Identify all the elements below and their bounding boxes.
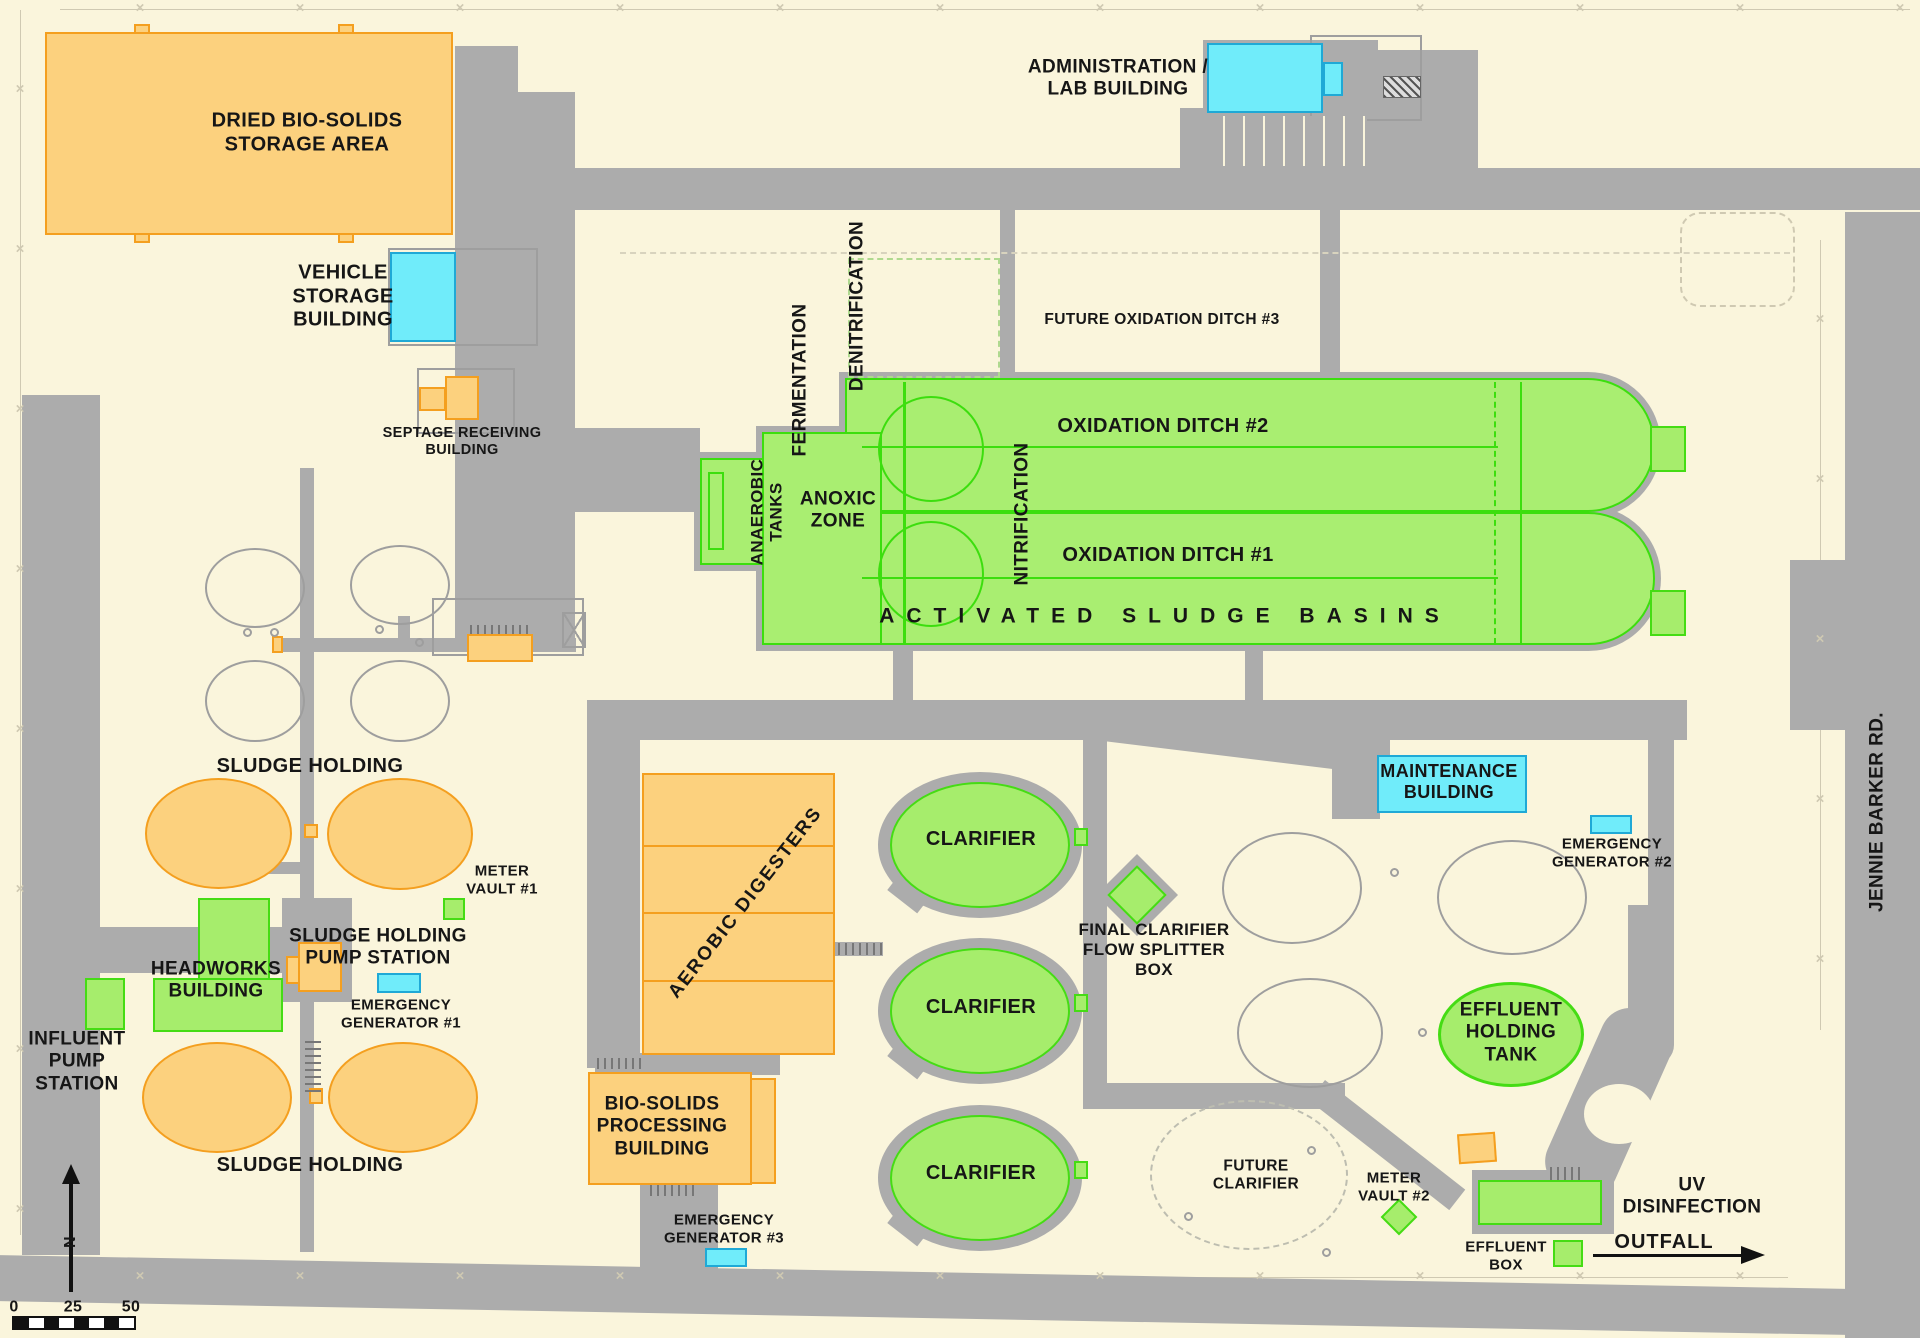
clarifier-1-tab	[1074, 828, 1088, 846]
road-clarifier-spine	[1083, 738, 1107, 1090]
sludge-holding-tank-1	[145, 778, 292, 889]
road-digester-column	[587, 738, 640, 1068]
empty-tank-3	[205, 660, 305, 742]
outfall-label: OUTFALL	[1614, 1231, 1713, 1255]
clarifier-3-tab	[1074, 1161, 1088, 1179]
sludge-holding-upper-label: SLUDGE HOLDING	[217, 755, 404, 779]
oxidation-ditch-1-label: OXIDATION DITCH #1	[1062, 544, 1273, 568]
road-top	[520, 168, 1920, 210]
cluster-building-hatch	[470, 625, 532, 634]
meter-vault-1-box	[443, 898, 465, 920]
uv-disinfection-label: UV DISINFECTION	[1623, 1175, 1762, 1220]
uv-disinfection-unit	[1478, 1180, 1602, 1225]
denitrification-label: DENITRIFICATION	[848, 221, 869, 391]
ditch-2-end-structure	[1650, 426, 1686, 472]
dried-tab-4	[338, 233, 354, 243]
anoxic-zone-label: ANOXIC ZONE	[800, 489, 876, 534]
road-conn-c	[893, 643, 913, 703]
dried-tab-3	[134, 233, 150, 243]
denitrification-future-zone	[848, 258, 1000, 378]
final-clarifier-flow-splitter-label: FINAL CLARIFIER FLOW SPLITTER BOX	[1078, 920, 1229, 980]
septage-receiving-label: SEPTAGE RECEIVING BUILDING	[383, 425, 542, 459]
future-clarifier-label: FUTURE CLARIFIER	[1213, 1158, 1299, 1195]
site-plan-map: ××××××××××××××××××××××××××××××××××××	[0, 0, 1920, 1338]
basin-divider-dashed	[1494, 382, 1496, 644]
emergency-generator-1-unit	[377, 973, 421, 993]
valve-dot-1	[243, 628, 252, 637]
stairs-2	[838, 943, 882, 955]
emergency-generator-1-label: EMERGENCY GENERATOR #1	[341, 996, 461, 1031]
activated-sludge-basins-label: ACTIVATED SLUDGE BASINS	[879, 605, 1451, 630]
empty-tank-7	[1237, 978, 1383, 1088]
cluster-building	[467, 634, 533, 662]
effluent-box-unit	[1553, 1240, 1583, 1267]
road-elbow	[518, 428, 700, 512]
sludge-holding-pump-station-label: SLUDGE HOLDING PUMP STATION	[289, 926, 467, 971]
pad-maintenance	[1332, 753, 1380, 819]
admin-hatch-pad	[1383, 76, 1421, 98]
sludge-holding-tank-3	[142, 1042, 292, 1153]
valve-dot-8	[1322, 1248, 1331, 1257]
sludge-holding-tank-4	[328, 1042, 478, 1153]
empty-tank-2	[350, 545, 450, 625]
valve-dot-5	[1390, 868, 1399, 877]
anaerobic-tanks-label: ANAEROBIC TANKS	[748, 459, 785, 566]
clarifier-2-tab	[1074, 994, 1088, 1012]
road-left	[22, 395, 100, 1255]
valve-dot-3	[375, 625, 384, 634]
emergency-generator-3-label: EMERGENCY GENERATOR #3	[664, 1211, 784, 1246]
anoxic-arc-upper	[878, 396, 984, 502]
clarifier-2-label: CLARIFIER	[926, 996, 1036, 1020]
dried-tab-1	[134, 24, 150, 34]
headworks-building-label: HEADWORKS BUILDING	[151, 959, 281, 1004]
meter-vault-1-label: METER VAULT #1	[466, 862, 538, 897]
north-arrow-icon: N	[55, 1160, 89, 1305]
valve-dot-6	[1418, 1028, 1427, 1037]
scale-tick-25: 25	[64, 1299, 83, 1318]
vehicle-storage-label: VEHICLE STORAGE BUILDING	[292, 262, 393, 333]
effluent-holding-tank-label: EFFLUENT HOLDING TANK	[1460, 999, 1562, 1066]
emergency-generator-3-unit	[705, 1248, 747, 1267]
vehicle-storage-building	[390, 252, 456, 342]
stairs-4	[597, 1058, 641, 1069]
septage-receiving-annex	[419, 387, 446, 411]
clarifier-1-label: CLARIFIER	[926, 828, 1036, 852]
stairs-3	[1550, 1167, 1584, 1180]
oxidation-ditch-2-label: OXIDATION DITCH #2	[1057, 415, 1268, 439]
road-bottom	[0, 1255, 1920, 1337]
administration-annex	[1323, 62, 1343, 96]
digester-divider-1	[642, 845, 835, 847]
influent-pump-station-label: INFLUENT PUMP STATION	[28, 1028, 125, 1095]
administration-lab-label: ADMINISTRATION / LAB BUILDING	[1028, 57, 1208, 102]
ditch-1-end-structure	[1650, 590, 1686, 636]
scale-tick-50: 50	[122, 1299, 141, 1318]
clarifier-3-label: CLARIFIER	[926, 1162, 1036, 1186]
biosolids-processing-column	[750, 1078, 776, 1184]
valve-dot-9	[1184, 1212, 1193, 1221]
nitrification-label: NITRIFICATION	[1013, 442, 1034, 585]
valve-dot-2	[270, 628, 279, 637]
basin-divider-2	[1520, 382, 1522, 644]
future-oxidation-ditch-3-label: FUTURE OXIDATION DITCH #3	[1044, 311, 1279, 329]
empty-tank-1	[205, 548, 305, 628]
fermentation-label: FERMENTATION	[791, 304, 812, 457]
meter-vault-2-label: METER VAULT #2	[1358, 1169, 1430, 1204]
sludge-holding-lower-label: SLUDGE HOLDING	[217, 1154, 404, 1178]
effluent-box-label: EFFLUENT BOX	[1465, 1238, 1547, 1273]
stairs-5	[650, 1185, 694, 1196]
empty-tank-5	[1222, 832, 1362, 944]
road-conn-b	[1320, 205, 1340, 380]
valve-dot-7	[1307, 1146, 1316, 1155]
cluster-small-structure	[272, 636, 283, 653]
influent-pump-station-building	[85, 978, 125, 1030]
uv-road-island	[1584, 1084, 1654, 1144]
road-conn-a	[1000, 205, 1015, 380]
anaerobic-tanks-inner	[708, 472, 724, 550]
future-ditch-dashed-line	[620, 252, 1790, 254]
admin-parking	[1205, 116, 1367, 166]
jennie-barker-rd-label: JENNIE BARKER RD.	[1868, 712, 1889, 912]
sludge-holding-tank-2	[327, 778, 473, 890]
septage-receiving-building	[445, 376, 479, 420]
maintenance-building-label: MAINTENANCE BUILDING	[1380, 761, 1517, 803]
dried-tab-2	[338, 24, 354, 34]
north-letter: N	[62, 1236, 80, 1248]
tank-valve-box-upper	[304, 824, 318, 838]
future-structure-outline	[1680, 212, 1795, 307]
road-below-basins	[587, 700, 1687, 740]
cluster-cross-box	[562, 612, 586, 648]
emergency-generator-2-label: EMERGENCY GENERATOR #2	[1552, 835, 1672, 870]
stairs-1	[305, 1038, 321, 1092]
valve-dot-4	[415, 638, 424, 647]
effluent-area-structure	[1457, 1132, 1497, 1165]
empty-tank-4	[350, 660, 450, 742]
road-conn-d	[1245, 643, 1263, 703]
scale-tick-0: 0	[9, 1299, 18, 1318]
scale-bar	[12, 1316, 136, 1330]
bio-solids-processing-label: BIO-SOLIDS PROCESSING BUILDING	[597, 1093, 728, 1160]
emergency-generator-2-unit	[1590, 815, 1632, 834]
administration-lab-building	[1207, 43, 1323, 113]
dried-biosolids-label: DRIED BIO-SOLIDS STORAGE AREA	[212, 109, 403, 156]
